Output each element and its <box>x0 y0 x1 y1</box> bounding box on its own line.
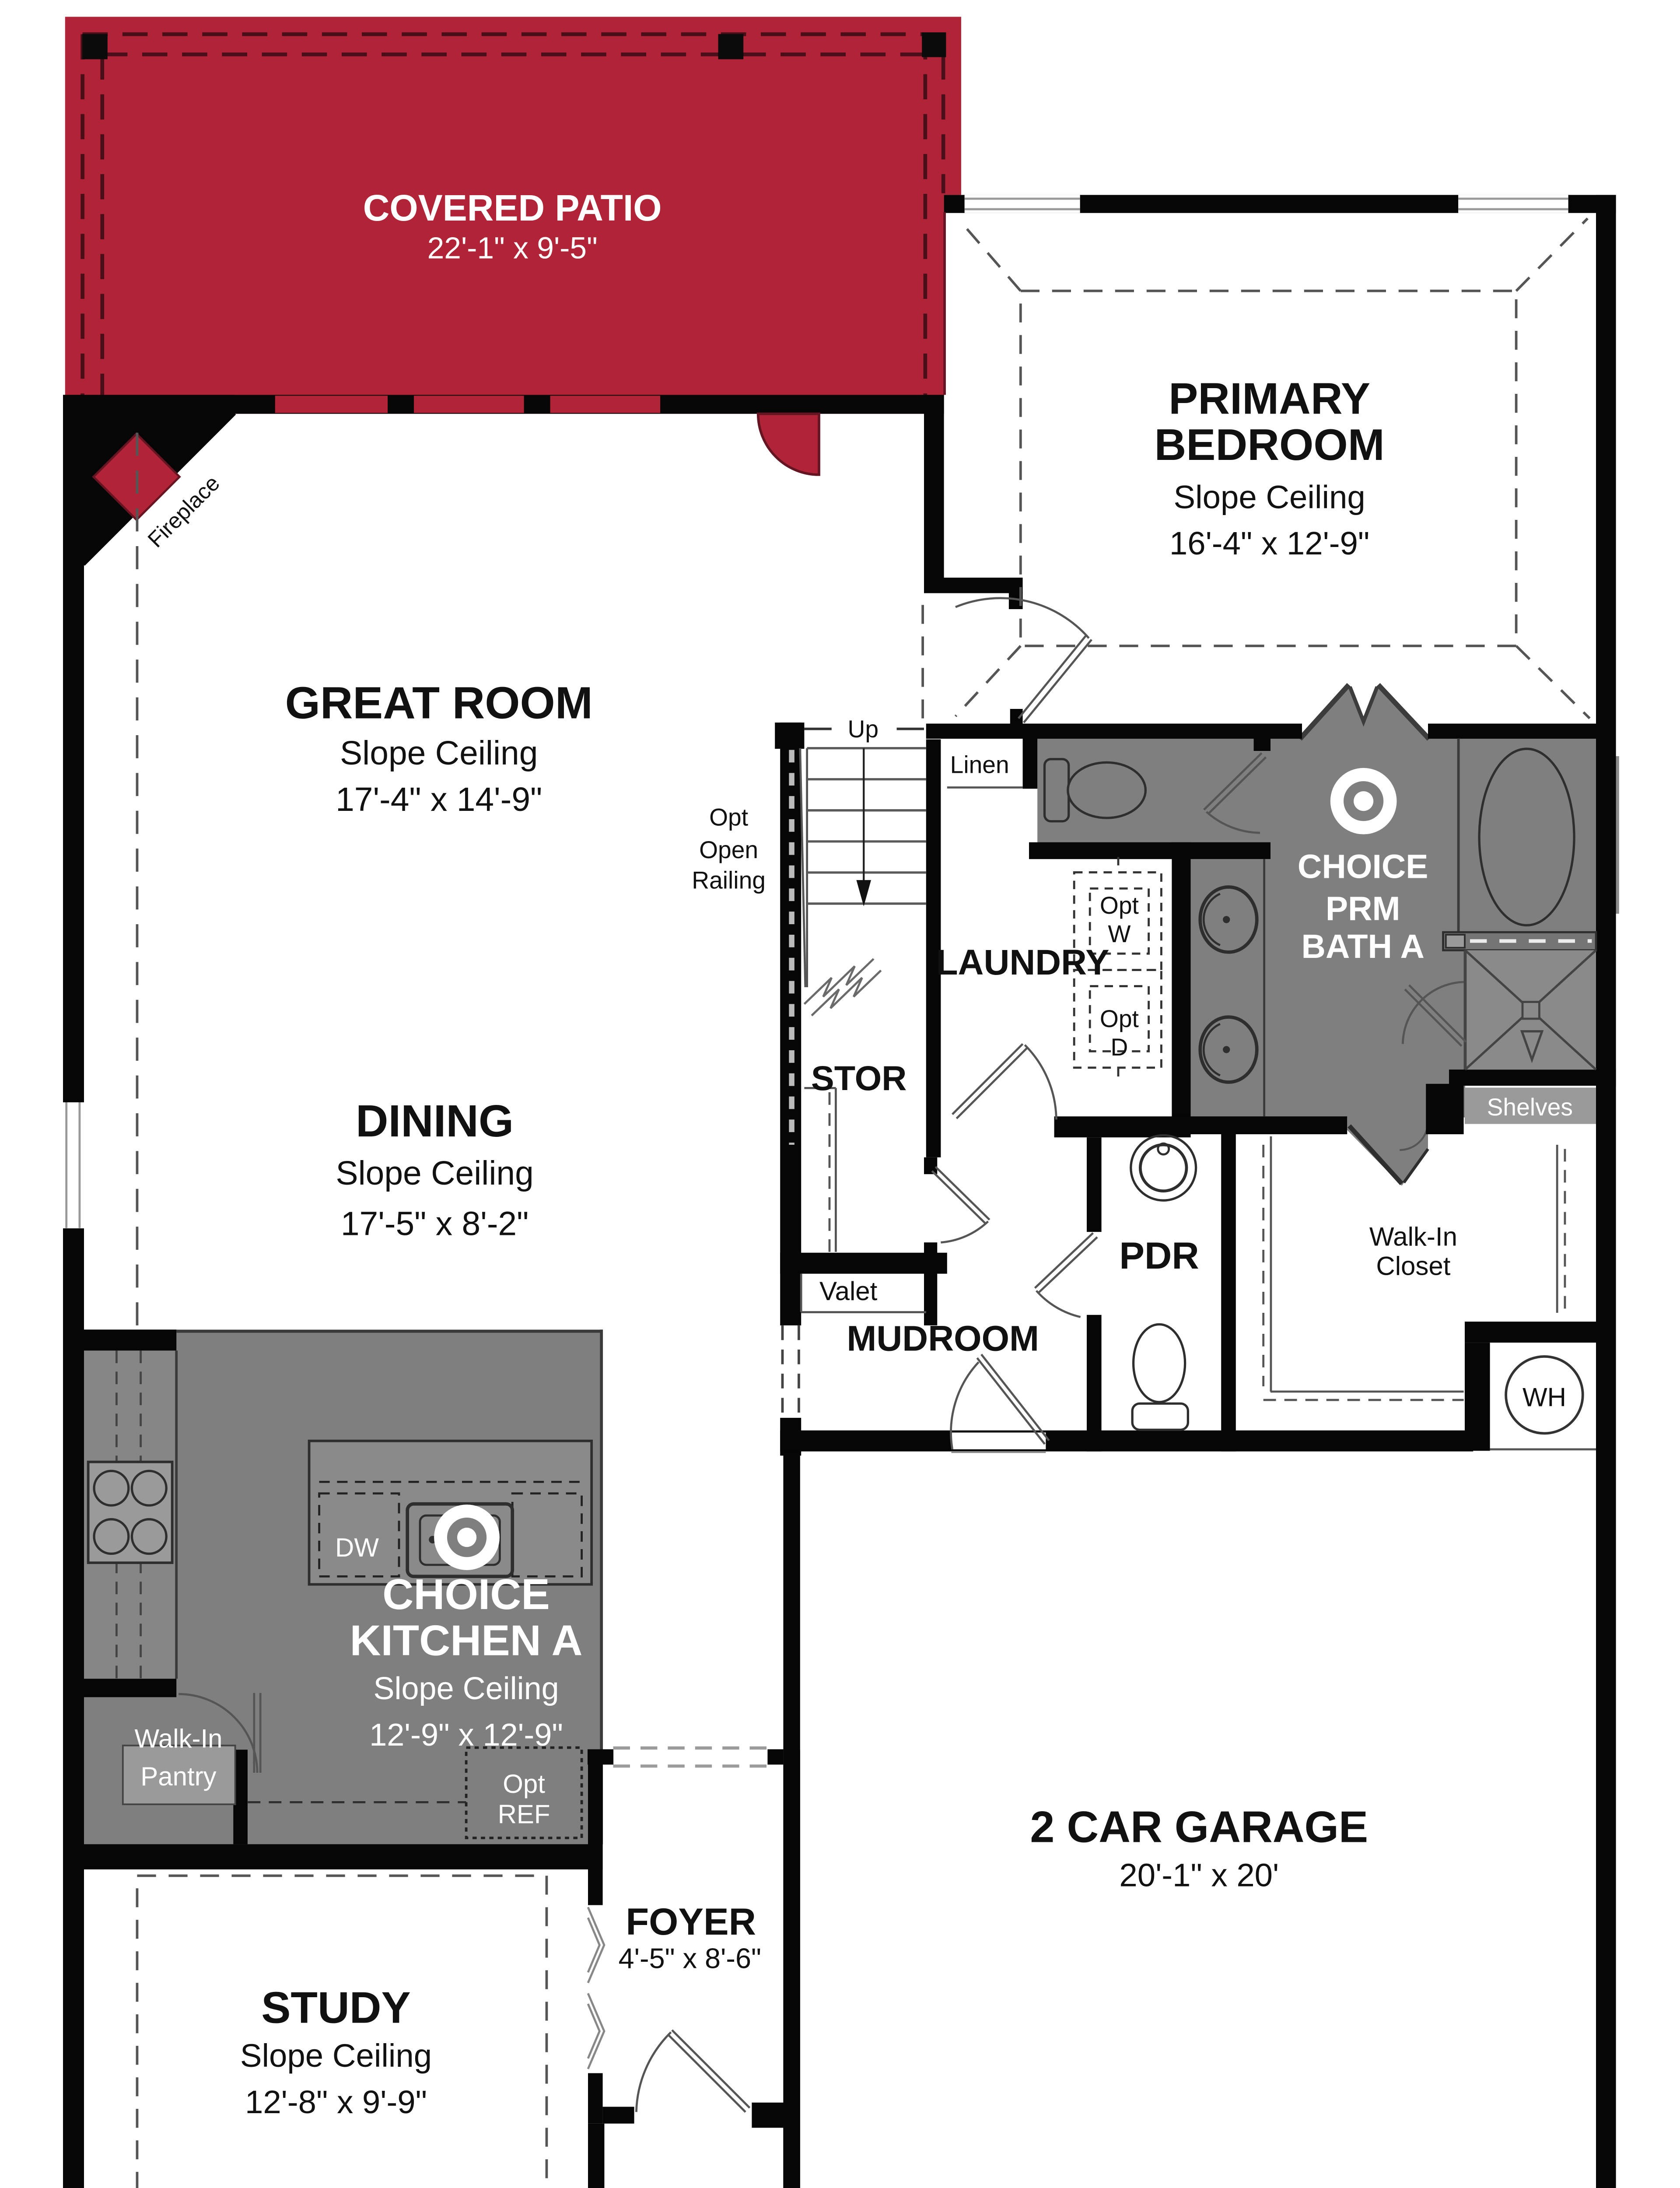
svg-text:PRM: PRM <box>1326 890 1400 927</box>
svg-text:Slope Ceiling: Slope Ceiling <box>336 1154 533 1192</box>
svg-text:17'-5" x 8'-2": 17'-5" x 8'-2" <box>341 1205 529 1242</box>
svg-text:12'-9" x 12'-9": 12'-9" x 12'-9" <box>369 1718 563 1753</box>
svg-text:16'-4" x 12'-9": 16'-4" x 12'-9" <box>1169 525 1369 561</box>
svg-text:Pantry: Pantry <box>140 1762 216 1791</box>
svg-text:PDR: PDR <box>1119 1235 1199 1277</box>
svg-text:Walk-In: Walk-In <box>134 1724 222 1753</box>
svg-text:FOYER: FOYER <box>626 1901 756 1943</box>
svg-text:Opt: Opt <box>503 1769 545 1799</box>
svg-text:STUDY: STUDY <box>261 1983 411 2032</box>
svg-text:20'-1" x 20': 20'-1" x 20' <box>1119 1857 1279 1893</box>
svg-text:Up: Up <box>848 715 879 743</box>
svg-text:BEDROOM: BEDROOM <box>1154 421 1384 470</box>
svg-text:COVERED PATIO: COVERED PATIO <box>363 187 662 228</box>
svg-text:4'-5" x 8'-6": 4'-5" x 8'-6" <box>619 1943 761 1974</box>
svg-text:Open: Open <box>699 836 758 863</box>
svg-text:Slope Ceiling: Slope Ceiling <box>340 734 538 772</box>
svg-text:Opt: Opt <box>1100 1005 1139 1032</box>
svg-text:CHOICE: CHOICE <box>1298 848 1428 885</box>
svg-text:Opt: Opt <box>709 803 748 831</box>
svg-text:Linen: Linen <box>950 751 1009 778</box>
svg-text:W: W <box>1108 920 1130 947</box>
svg-text:Walk-In: Walk-In <box>1369 1222 1457 1251</box>
svg-text:STOR: STOR <box>811 1059 907 1098</box>
svg-text:LAUNDRY: LAUNDRY <box>936 943 1109 982</box>
svg-text:DINING: DINING <box>356 1096 514 1146</box>
svg-text:12'-8" x 9'-9": 12'-8" x 9'-9" <box>245 2084 427 2120</box>
svg-text:Opt: Opt <box>1100 892 1139 919</box>
svg-text:17'-4" x 14'-9": 17'-4" x 14'-9" <box>336 781 542 818</box>
svg-text:2 CAR GARAGE: 2 CAR GARAGE <box>1030 1803 1368 1852</box>
svg-text:BATH A: BATH A <box>1301 928 1424 965</box>
svg-text:PRIMARY: PRIMARY <box>1169 375 1370 424</box>
svg-text:WH: WH <box>1522 1383 1566 1412</box>
svg-text:Shelves: Shelves <box>1487 1094 1573 1121</box>
svg-text:Slope Ceiling: Slope Ceiling <box>240 2037 432 2074</box>
svg-text:D: D <box>1110 1034 1128 1061</box>
svg-text:MUDROOM: MUDROOM <box>847 1318 1039 1358</box>
svg-text:Closet: Closet <box>1376 1252 1450 1281</box>
svg-text:REF: REF <box>498 1799 550 1829</box>
svg-text:Slope Ceiling: Slope Ceiling <box>1173 479 1365 515</box>
svg-text:Valet: Valet <box>819 1276 878 1306</box>
svg-text:CHOICE: CHOICE <box>382 1570 550 1618</box>
svg-text:Slope Ceiling: Slope Ceiling <box>374 1671 559 1706</box>
svg-text:KITCHEN A: KITCHEN A <box>350 1616 583 1664</box>
svg-text:DW: DW <box>335 1533 379 1562</box>
svg-text:GREAT ROOM: GREAT ROOM <box>285 678 593 728</box>
svg-text:22'-1" x 9'-5": 22'-1" x 9'-5" <box>427 231 598 265</box>
svg-text:Railing: Railing <box>692 866 766 894</box>
